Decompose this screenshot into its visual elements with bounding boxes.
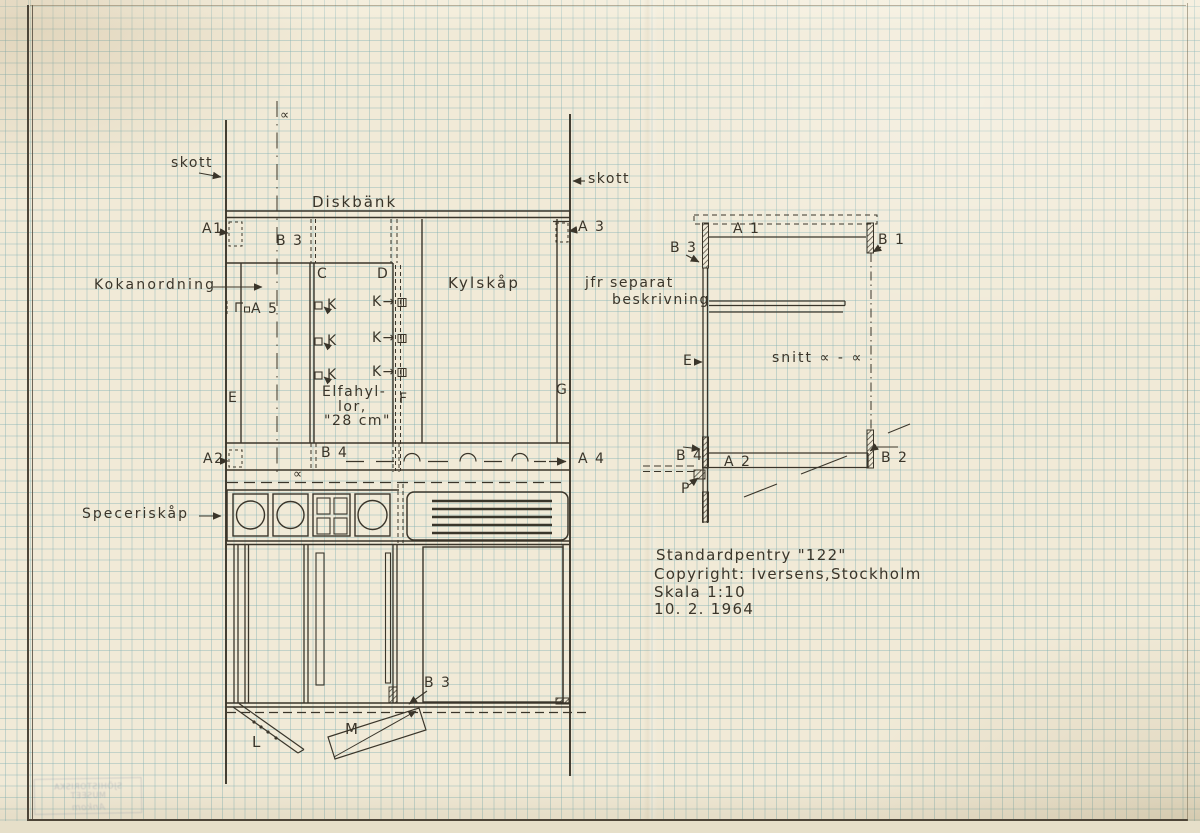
section-mark-alpha-top: ∝ bbox=[280, 109, 289, 123]
label-k-1: K bbox=[327, 298, 338, 313]
label-d: D bbox=[377, 267, 389, 282]
label-b3-plan: B 3 bbox=[276, 234, 303, 249]
label-f-plan: F bbox=[399, 392, 409, 407]
label-kokanordning: Kokanordning bbox=[94, 278, 216, 293]
label-a2-plan: A2 bbox=[203, 452, 224, 467]
label-g-plan: G bbox=[556, 383, 568, 398]
front-view-lines bbox=[226, 483, 591, 760]
label-k-socket-1: K→ bbox=[372, 295, 407, 310]
stamp-text-line2: Ankom bbox=[35, 802, 141, 814]
label-skott-right: skott bbox=[588, 172, 630, 187]
label-k-2: K bbox=[327, 334, 338, 349]
label-a2-section: A 2 bbox=[724, 455, 751, 470]
title-line-1: Standardpentry "122" bbox=[656, 547, 847, 564]
label-e-section: E bbox=[683, 354, 693, 369]
label-diskbank: Diskbänk bbox=[312, 194, 397, 211]
label-kylskap: Kylskåp bbox=[448, 275, 520, 292]
label-b4-plan: B 4 bbox=[321, 446, 348, 461]
label-e-plan: E bbox=[228, 391, 238, 406]
label-a1-section: A 1 bbox=[733, 222, 760, 237]
label-speceriskap: Speceriskåp bbox=[82, 507, 189, 522]
socket-symbol-icon bbox=[397, 297, 407, 308]
label-b2-section: B 2 bbox=[881, 451, 908, 466]
k-socket-text-3: K→ bbox=[372, 365, 396, 380]
label-b4-section: B 4 bbox=[676, 449, 703, 464]
label-a3-plan: A 3 bbox=[578, 220, 605, 235]
label-b3-section: B 3 bbox=[670, 241, 697, 256]
scanned-technical-drawing: ∝ skott Diskbänk skott A1 A 3 B 3 Kokano… bbox=[0, 0, 1200, 833]
stamp-text-line1: SJÖHISTORISKA MUSEET bbox=[35, 781, 141, 801]
k-socket-text-2: K→ bbox=[372, 331, 396, 346]
label-k-3: K bbox=[327, 368, 338, 383]
label-note-line1: jfr separat bbox=[585, 276, 674, 291]
title-line-2: Copyright: Iversens,Stockholm bbox=[654, 566, 922, 583]
label-b3-front: B 3 bbox=[424, 676, 451, 691]
label-k-socket-3: K→ bbox=[372, 365, 407, 380]
label-a5: A 5 bbox=[251, 302, 278, 317]
label-note-line2: beskrivning bbox=[612, 293, 710, 308]
label-c: C bbox=[317, 267, 328, 282]
label-elfahyllor-3: "28 cm" bbox=[324, 414, 391, 429]
k-socket-text-1: K→ bbox=[372, 295, 396, 310]
label-skott-left: skott bbox=[171, 156, 213, 171]
archive-stamp: SJÖHISTORISKA MUSEET Ankom bbox=[34, 777, 143, 815]
socket-symbol-icon bbox=[397, 367, 407, 378]
label-p-section: P bbox=[681, 482, 691, 497]
label-k-socket-2: K→ bbox=[372, 331, 407, 346]
title-line-4: 10. 2. 1964 bbox=[654, 601, 754, 618]
label-l-flap: L bbox=[252, 734, 262, 751]
section-mark-alpha-mid: ∝ bbox=[293, 468, 302, 482]
socket-symbol-icon bbox=[397, 333, 407, 344]
label-m-door: M bbox=[345, 721, 360, 738]
label-snitt: snitt ∝ - ∝ bbox=[772, 351, 863, 366]
title-line-3: Skala 1:10 bbox=[654, 584, 746, 601]
drawing-linework bbox=[0, 0, 1200, 833]
label-a4-plan: A 4 bbox=[578, 452, 605, 467]
label-b1-section: B 1 bbox=[878, 233, 905, 248]
label-a1-plan: A1 bbox=[202, 222, 223, 237]
